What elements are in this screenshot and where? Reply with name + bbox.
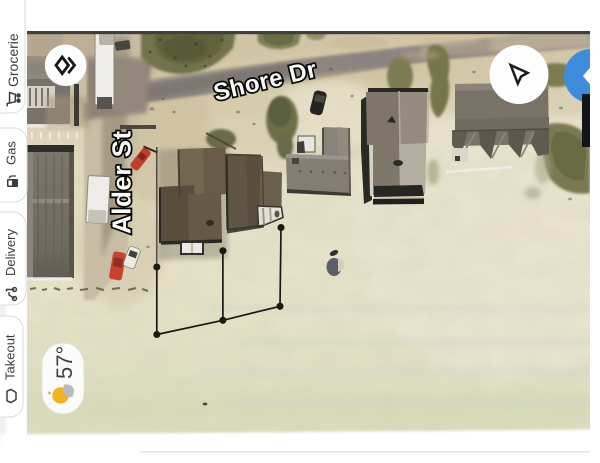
svg-text:57°: 57° [52, 346, 77, 379]
svg-text:Gas: Gas [4, 141, 19, 165]
svg-text:Takeout: Takeout [3, 334, 18, 380]
svg-text:Delivery: Delivery [3, 229, 18, 276]
svg-text:Grocerie: Grocerie [5, 33, 21, 87]
